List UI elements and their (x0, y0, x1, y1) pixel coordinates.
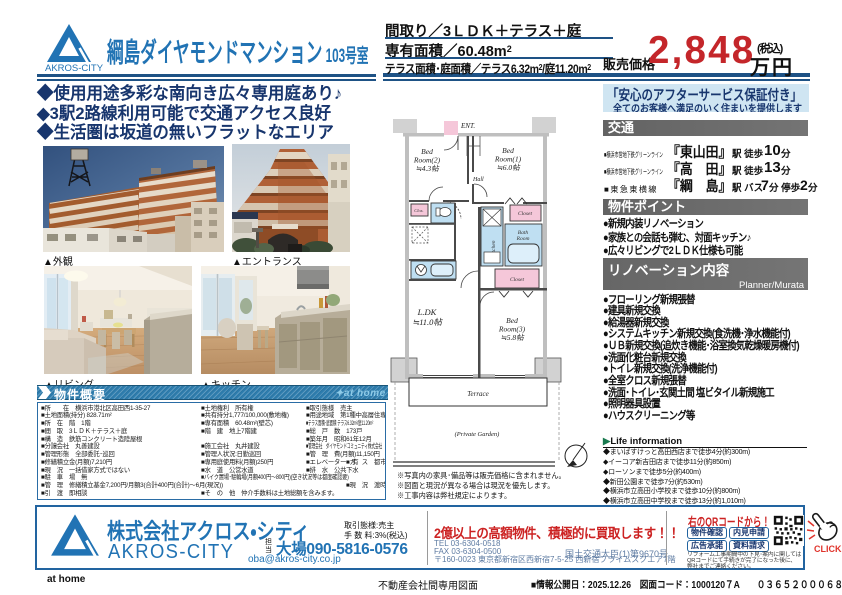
svg-text:≒4.3帖: ≒4.3帖 (415, 164, 440, 173)
svg-text:(Private Garden): (Private Garden) (455, 431, 500, 438)
svg-text:Closet: Closet (510, 277, 525, 283)
svg-text:Room: Room (516, 236, 530, 242)
svg-text:CLICK: CLICK (814, 544, 842, 554)
svg-text:L.DK: L.DK (417, 307, 438, 317)
svg-text:ENT.: ENT. (460, 122, 475, 130)
svg-text:※工事内容は弊社規定によります。: ※工事内容は弊社規定によります。 (397, 491, 511, 500)
svg-text:≒6.0帖: ≒6.0帖 (496, 163, 521, 172)
svg-text:※図面と現況が異なる場合は現況を優先します。: ※図面と現況が異なる場合は現況を優先します。 (397, 481, 554, 490)
svg-text:Closet: Closet (518, 211, 533, 217)
svg-text:≒5.8帖: ≒5.8帖 (500, 333, 525, 342)
svg-text:Clos.: Clos. (414, 208, 423, 213)
svg-text:≒11.0帖: ≒11.0帖 (412, 317, 443, 327)
svg-text:Terrace: Terrace (467, 390, 489, 398)
svg-text:Hall: Hall (472, 177, 484, 183)
svg-text:※写真内の家具･備品等は販売価格に含まれません。: ※写真内の家具･備品等は販売価格に含まれません。 (397, 471, 566, 480)
